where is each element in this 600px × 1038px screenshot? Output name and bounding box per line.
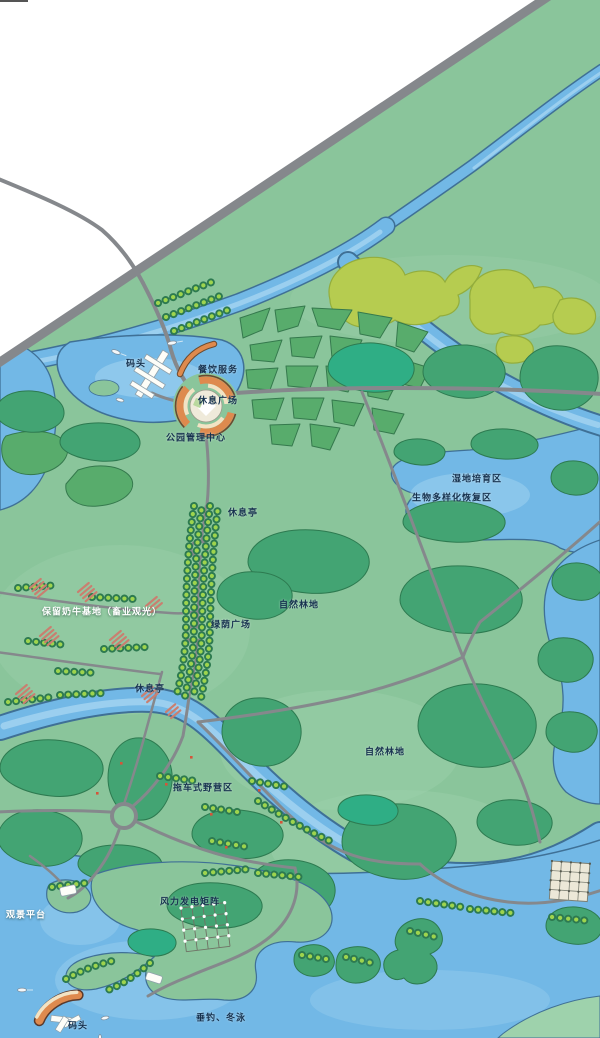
wind-turbine-grid-east	[549, 861, 590, 902]
park-master-plan-map: 码头餐饮服务休息广场公园管理中心湿地培育区生物多样化恢复区休息亭自然林地绿荫广场…	[0, 0, 600, 1038]
map-graphics	[0, 0, 600, 1038]
bay-islet	[89, 380, 119, 396]
roundabout-large	[112, 804, 136, 828]
